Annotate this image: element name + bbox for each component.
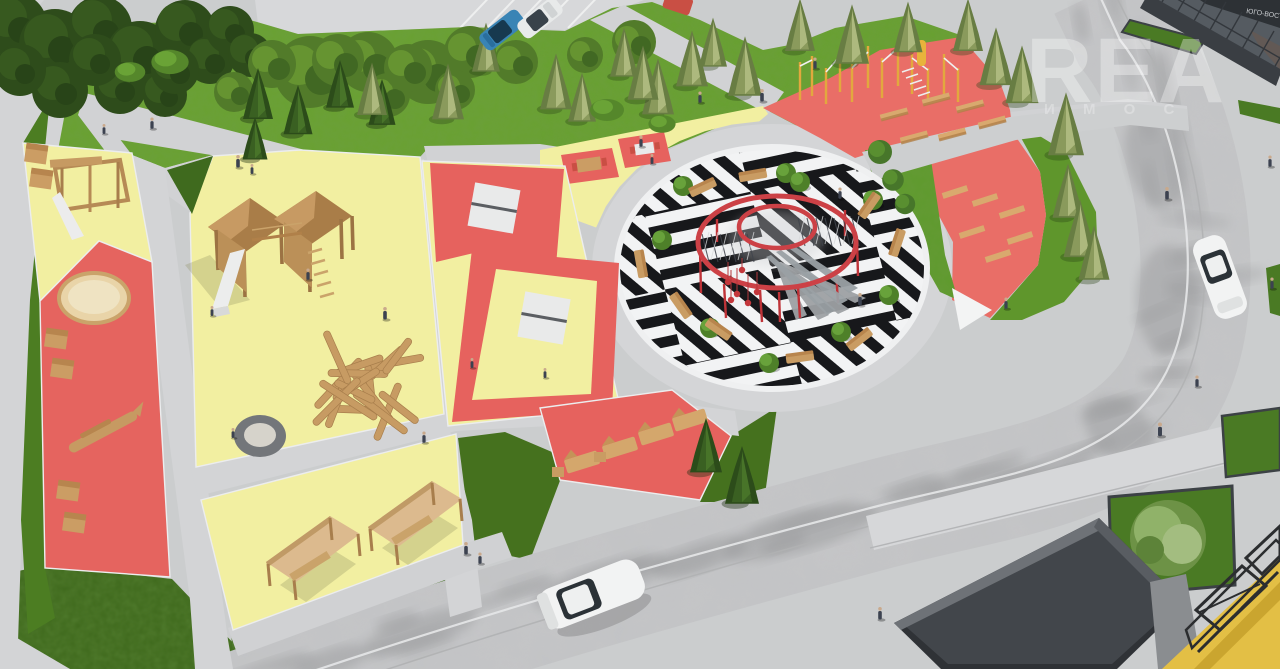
svg-text:И М О С: И М О С [1044, 101, 1186, 118]
